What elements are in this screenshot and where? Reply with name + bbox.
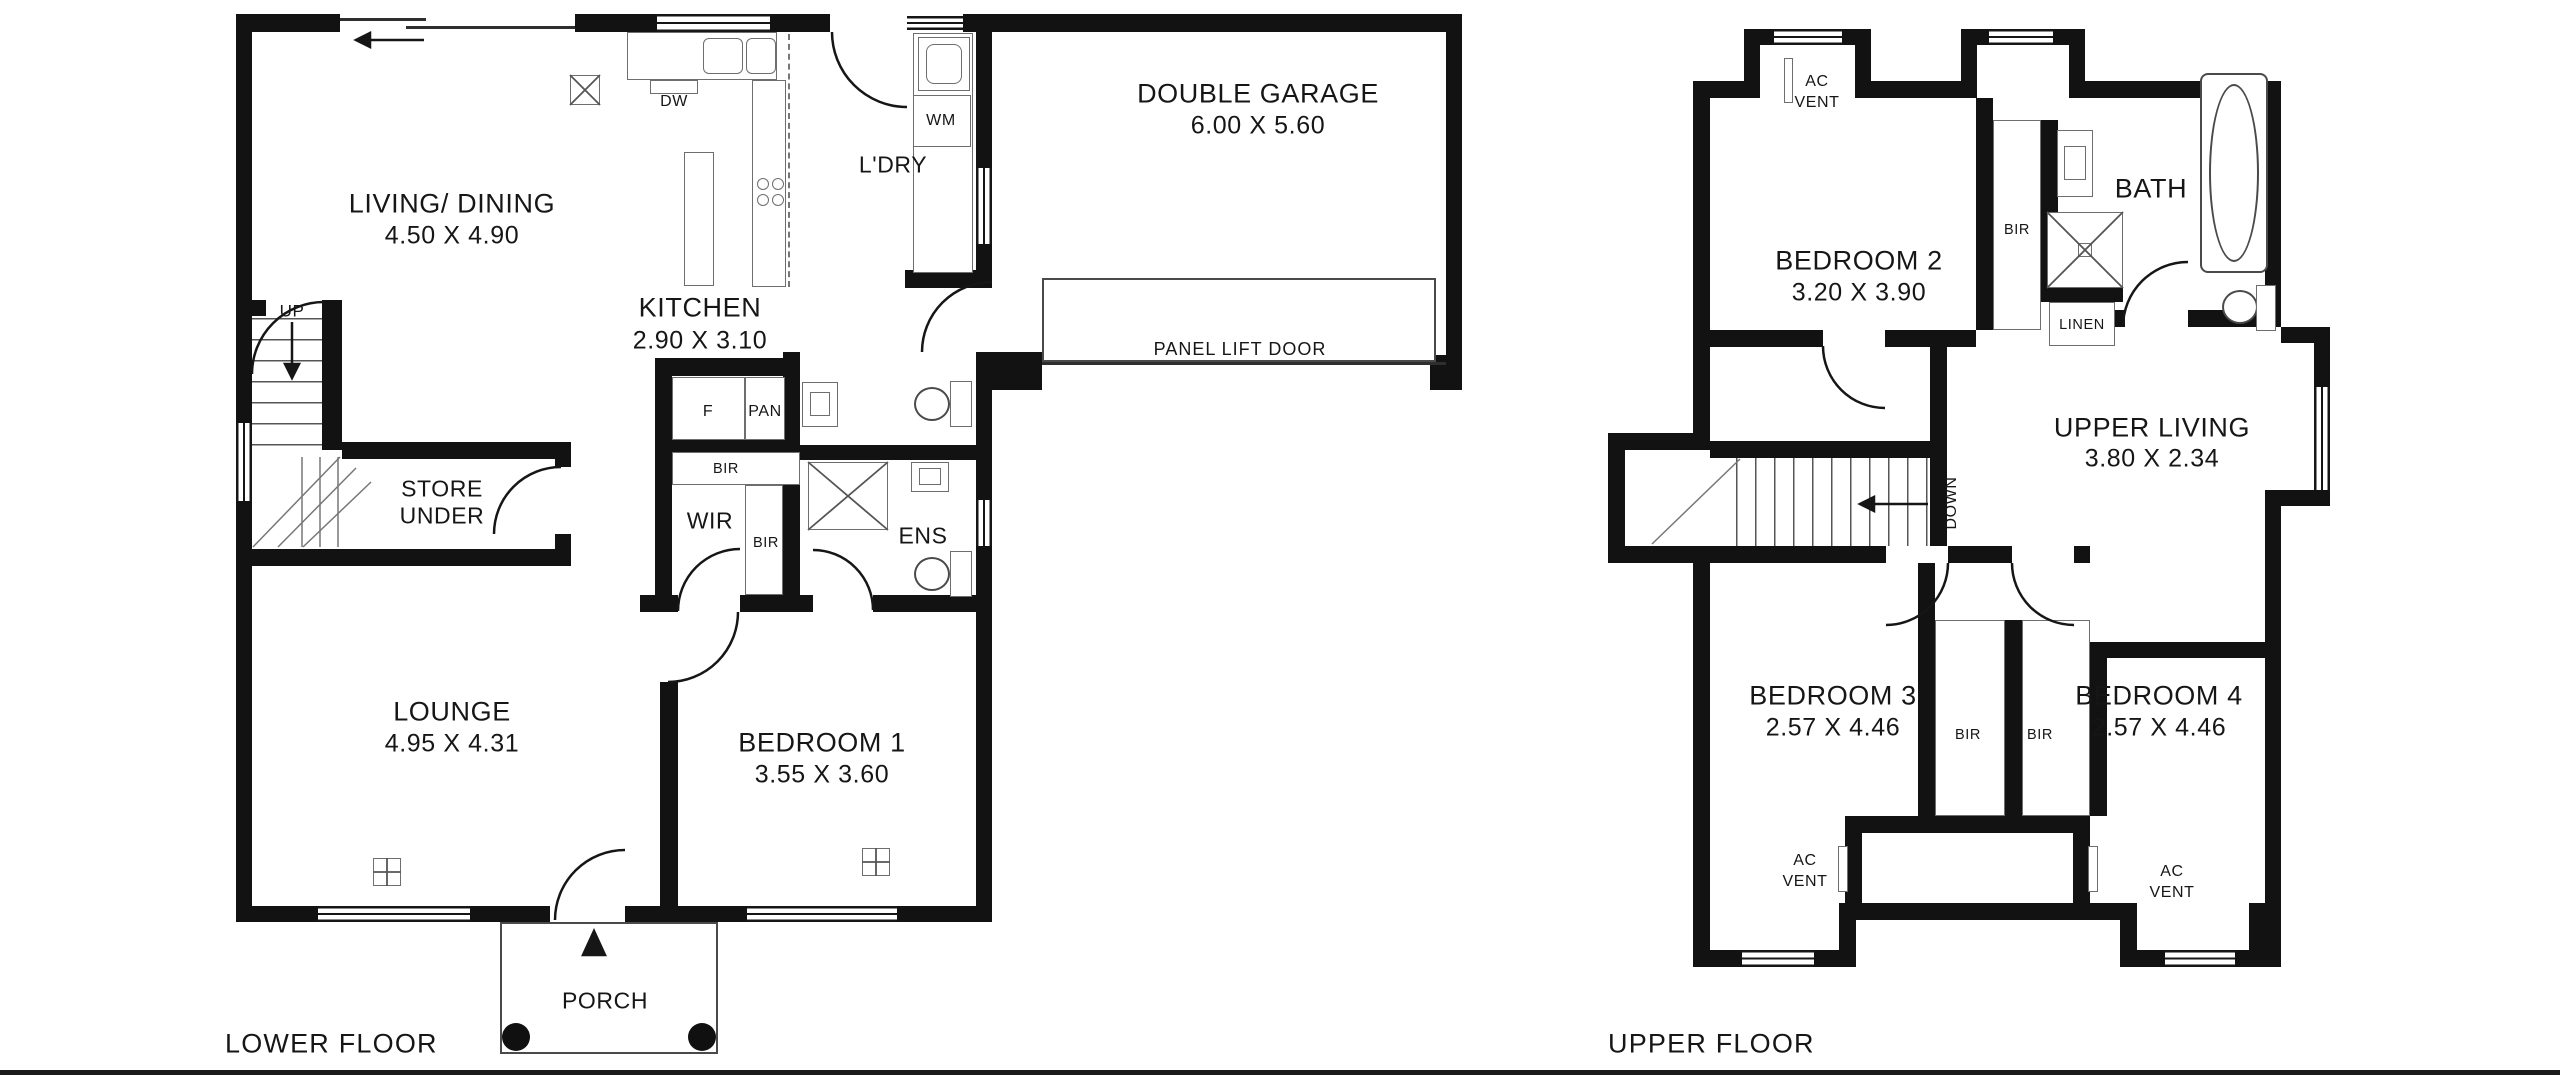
toilet-cistern (950, 551, 972, 597)
door-arc (832, 32, 907, 107)
window (976, 168, 992, 244)
wall (2265, 490, 2281, 967)
room-dims-bedroom1: 3.55 X 3.60 (755, 763, 889, 788)
room-label-kitchen: KITCHEN (639, 295, 762, 322)
shower (808, 462, 888, 530)
stairs (252, 318, 322, 452)
wall (2314, 327, 2330, 387)
cooktop-burner (772, 178, 784, 190)
label-washing-machine: WM (926, 113, 956, 129)
garage-wall (1446, 14, 1462, 362)
wall (770, 14, 830, 32)
wall (2053, 29, 2085, 45)
wall (640, 595, 678, 612)
plan-title-lower: LOWER FLOOR (225, 1029, 438, 1060)
room-label-wir: WIR (687, 510, 734, 533)
label-panel-lift-door: PANEL LIFT DOOR (1154, 340, 1327, 358)
kitchen-boundary (788, 34, 790, 287)
understair-diagonal (303, 482, 371, 547)
window (1742, 950, 1814, 967)
door-arc (678, 549, 740, 611)
label-ac: AC (1793, 853, 1816, 869)
garage-wall (1010, 14, 1462, 32)
wall (1961, 29, 1989, 45)
wc-basin-bowl (810, 392, 830, 416)
door-arc (922, 282, 992, 352)
ac-vent-grille (1784, 58, 1793, 103)
wall (1608, 546, 1886, 563)
wall (1948, 546, 2012, 563)
label-linen: LINEN (2059, 318, 2105, 333)
wall (575, 14, 657, 32)
light-symbol (570, 75, 600, 105)
door-arc (2012, 563, 2074, 625)
window (2165, 950, 2235, 967)
wall (470, 906, 550, 922)
floorplan-page: LIVING/ DINING 4.50 X 4.90 KITCHEN 2.90 … (0, 0, 2560, 1075)
label-vent: VENT (1794, 95, 1839, 111)
window (318, 906, 470, 922)
label-bir: BIR (753, 536, 779, 551)
room-label-laundry: L'DRY (859, 154, 927, 177)
garage-threshold (1042, 362, 1446, 365)
room-label-bedroom2: BEDROOM 2 (1775, 248, 1942, 275)
wall (555, 442, 571, 467)
garage-wall (992, 352, 1042, 390)
wall (2249, 903, 2281, 967)
wall (2041, 286, 2123, 302)
wall (252, 300, 266, 316)
stairs (1736, 458, 1928, 546)
wall (1871, 81, 1961, 98)
room-dims-bedroom2: 3.20 X 3.90 (1792, 281, 1926, 306)
label-down: DOWN (1944, 476, 1960, 529)
label-pantry: PAN (748, 404, 782, 420)
stair-diagonal (1652, 459, 1740, 544)
label-vent: VENT (2149, 885, 2194, 901)
cooktop-burner (757, 194, 769, 206)
understair-diagonal (278, 468, 356, 547)
room-label-bath: BATH (2115, 176, 2187, 203)
door-arc (2123, 262, 2188, 327)
toilet-bowl (914, 387, 950, 421)
room-label-bedroom3: BEDROOM 3 (1749, 683, 1916, 710)
room-label-garage: DOUBLE GARAGE (1137, 81, 1379, 108)
wall (236, 906, 318, 922)
wall (2281, 490, 2330, 506)
kitchen-sink (703, 38, 743, 74)
wall (2120, 950, 2165, 967)
plan-title-upper: UPPER FLOOR (1608, 1029, 1815, 1060)
room-dims-garage: 6.00 X 5.60 (1191, 114, 1325, 139)
room-label-ens: ENS (898, 525, 947, 548)
window (2314, 387, 2330, 490)
room-label-lounge: LOUNGE (393, 699, 511, 726)
cooktop-burner (772, 194, 784, 206)
room-dims-lounge: 4.95 X 4.31 (385, 732, 519, 757)
wall (1693, 81, 1744, 98)
room-label-bedroom1: BEDROOM 1 (738, 730, 905, 757)
laundry-trough-basin (926, 44, 962, 84)
wall (625, 906, 747, 922)
understair-diagonal (253, 457, 340, 547)
built-in-robe (2022, 620, 2090, 816)
wall (342, 442, 571, 459)
label-ac: AC (1805, 74, 1828, 90)
room-label-porch: PORCH (562, 990, 648, 1013)
wall (1976, 98, 1993, 330)
ens-vanity-bowl (919, 468, 941, 485)
window (907, 16, 963, 30)
slider-arrow-head (356, 33, 370, 47)
wall (660, 682, 678, 906)
window (1774, 29, 1842, 45)
wall (1918, 563, 1935, 816)
kitchen-sink (746, 38, 776, 74)
window (657, 14, 770, 32)
sliding-door (406, 26, 576, 29)
room-dims-kitchen: 2.90 X 3.10 (633, 329, 767, 354)
toilet-bowl (914, 557, 950, 591)
wall (1744, 29, 1774, 45)
door-arc (1886, 563, 1948, 625)
toilet-cistern (950, 381, 972, 427)
toilet-bowl (2222, 290, 2258, 324)
ac-vent-grille (2088, 846, 2098, 892)
wall (2005, 620, 2022, 816)
label-ac: AC (2160, 864, 2183, 880)
wall (976, 14, 992, 168)
shower-drain (2078, 243, 2092, 257)
room-dims-bedroom3: 2.57 X 4.46 (1766, 716, 1900, 741)
wall (322, 300, 342, 450)
window (747, 906, 897, 922)
bathtub-basin (2209, 84, 2259, 262)
label-bir: BIR (713, 462, 739, 477)
wall (1693, 96, 1710, 433)
built-in-robe (1935, 620, 2005, 816)
room-label-living-dining: LIVING/ DINING (349, 191, 555, 218)
wall (236, 14, 340, 32)
label-bir: BIR (2027, 728, 2053, 743)
wall (800, 445, 976, 460)
toilet-cistern (2256, 285, 2276, 331)
kitchen-island (684, 152, 714, 286)
wall (740, 595, 813, 612)
sliding-door (340, 18, 426, 21)
cooktop-burner (757, 178, 769, 190)
room-dims-living-dining: 4.50 X 4.90 (385, 224, 519, 249)
window-pane-symbol (373, 858, 401, 886)
bath-vanity-bowl (2064, 146, 2086, 180)
room-label-store-under-2: UNDER (400, 505, 485, 528)
label-dishwasher: DW (660, 94, 688, 110)
porch-post (502, 1023, 530, 1051)
dishwasher (650, 80, 698, 94)
window (236, 423, 252, 501)
wall (2115, 310, 2125, 327)
wall (1710, 330, 1823, 347)
wall (1608, 433, 1625, 563)
wall (655, 358, 672, 611)
wall (2090, 642, 2281, 658)
wall (236, 549, 571, 566)
porch-post (688, 1023, 716, 1051)
window-pane-symbol (862, 848, 890, 876)
label-fridge: F (703, 404, 713, 420)
door-arc (555, 850, 625, 920)
door-arc (494, 467, 561, 534)
wall (2074, 546, 2090, 563)
label-bir: BIR (1955, 728, 1981, 743)
room-label-upper-living: UPPER LIVING (2054, 415, 2250, 442)
room-label-bedroom4: BEDROOM 4 (2075, 683, 2242, 710)
wall (976, 352, 992, 500)
wall (1845, 816, 2090, 833)
wall (1842, 29, 1871, 45)
label-vent: VENT (1782, 874, 1827, 890)
image-bottom-edge (0, 1070, 2560, 1075)
wall (555, 534, 571, 549)
door-arc (668, 612, 738, 682)
wall (897, 906, 992, 922)
window (1989, 29, 2053, 45)
door-arc (813, 550, 873, 610)
wall (873, 595, 992, 612)
ac-vent-grille (1838, 846, 1848, 892)
wall (665, 358, 790, 376)
room-label-store-under-1: STORE (401, 478, 483, 501)
wall (236, 14, 252, 423)
label-bir: BIR (2004, 223, 2030, 238)
wall (1693, 950, 1742, 967)
wall (1710, 441, 1930, 458)
window (976, 500, 992, 546)
room-dims-bedroom4: 2.57 X 4.46 (2092, 716, 2226, 741)
label-up: UP (280, 303, 305, 320)
door-arc (1823, 346, 1885, 408)
room-dims-upper-living: 3.80 X 2.34 (2085, 447, 2219, 472)
